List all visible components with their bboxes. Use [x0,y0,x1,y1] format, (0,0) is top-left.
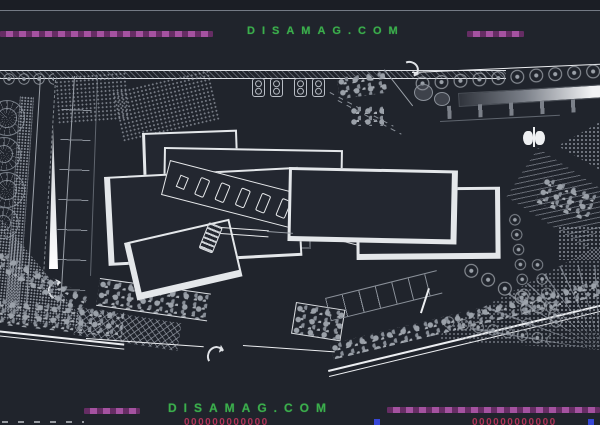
skylight-slot [235,187,252,208]
road-edge-line [243,345,335,353]
watermark-top: DISAMAG.COM [247,25,405,37]
double-circle-symbol [270,78,283,97]
double-circle-symbol [312,78,325,97]
cad-plan-screenshot: DISAMAG.COM [0,0,600,425]
cropped-digits-right: 000000000000 [472,417,557,425]
curved-arrow-icon [205,344,227,368]
purple-bar-top-left [0,31,213,37]
building-5 [287,167,458,245]
watermark-bottom: DISAMAG.COM [168,401,333,415]
purple-bar-bottom-left [84,408,140,414]
tree-circle [414,84,433,101]
double-circle-symbol [294,78,307,97]
purple-bar-top-right [467,31,524,37]
blue-square-marker [374,419,380,425]
double-circle-symbol [252,78,265,97]
purple-bar-bottom-right [387,407,600,413]
top-shade [0,0,600,10]
blue-square-marker [588,419,594,425]
skylight-slot [194,176,211,197]
road-tick-marks [55,95,92,291]
cropped-digits-center: 000000000000 [184,417,269,425]
top-frame-line [0,10,600,11]
skylight-notch [176,174,189,189]
north-arrow-icon [522,127,546,147]
tree-ring-row [2,72,54,86]
skylight-slot [214,182,231,203]
column-symbol-row [252,78,325,97]
tree-circle [434,92,450,106]
cropped-text-marks [2,421,84,423]
skylight-slot [255,192,272,213]
